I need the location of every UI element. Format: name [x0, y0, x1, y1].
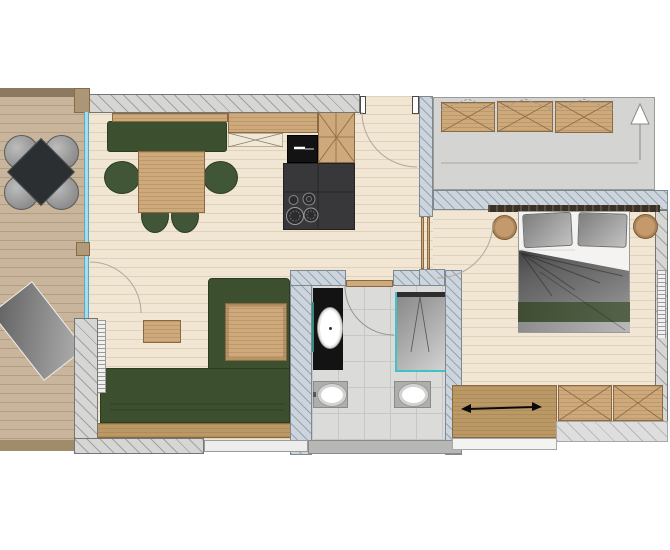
bedroom-wardrobe-x	[558, 385, 663, 421]
balcony-door-arc	[90, 262, 141, 313]
bathroom-door-arc	[345, 286, 394, 335]
cooktop	[287, 193, 319, 225]
entrance-direction-arrow	[631, 104, 649, 160]
bedroom-door-arc	[437, 222, 493, 278]
sliding-door-arrow	[461, 402, 542, 413]
duvet	[519, 250, 629, 330]
hall-wardrobe-x	[441, 101, 613, 133]
duvet-shade	[519, 250, 629, 302]
faucet	[294, 148, 314, 149]
tall-cabinet-lines	[318, 112, 355, 163]
entrance-door-arc	[362, 112, 417, 167]
floor-plan	[0, 0, 670, 550]
wardrobe-door-dashes	[441, 99, 613, 110]
shower-door-lines	[411, 297, 429, 352]
worktop-x	[228, 133, 283, 147]
linework-overlay	[0, 0, 670, 550]
sofa-seat-lines	[110, 404, 285, 410]
